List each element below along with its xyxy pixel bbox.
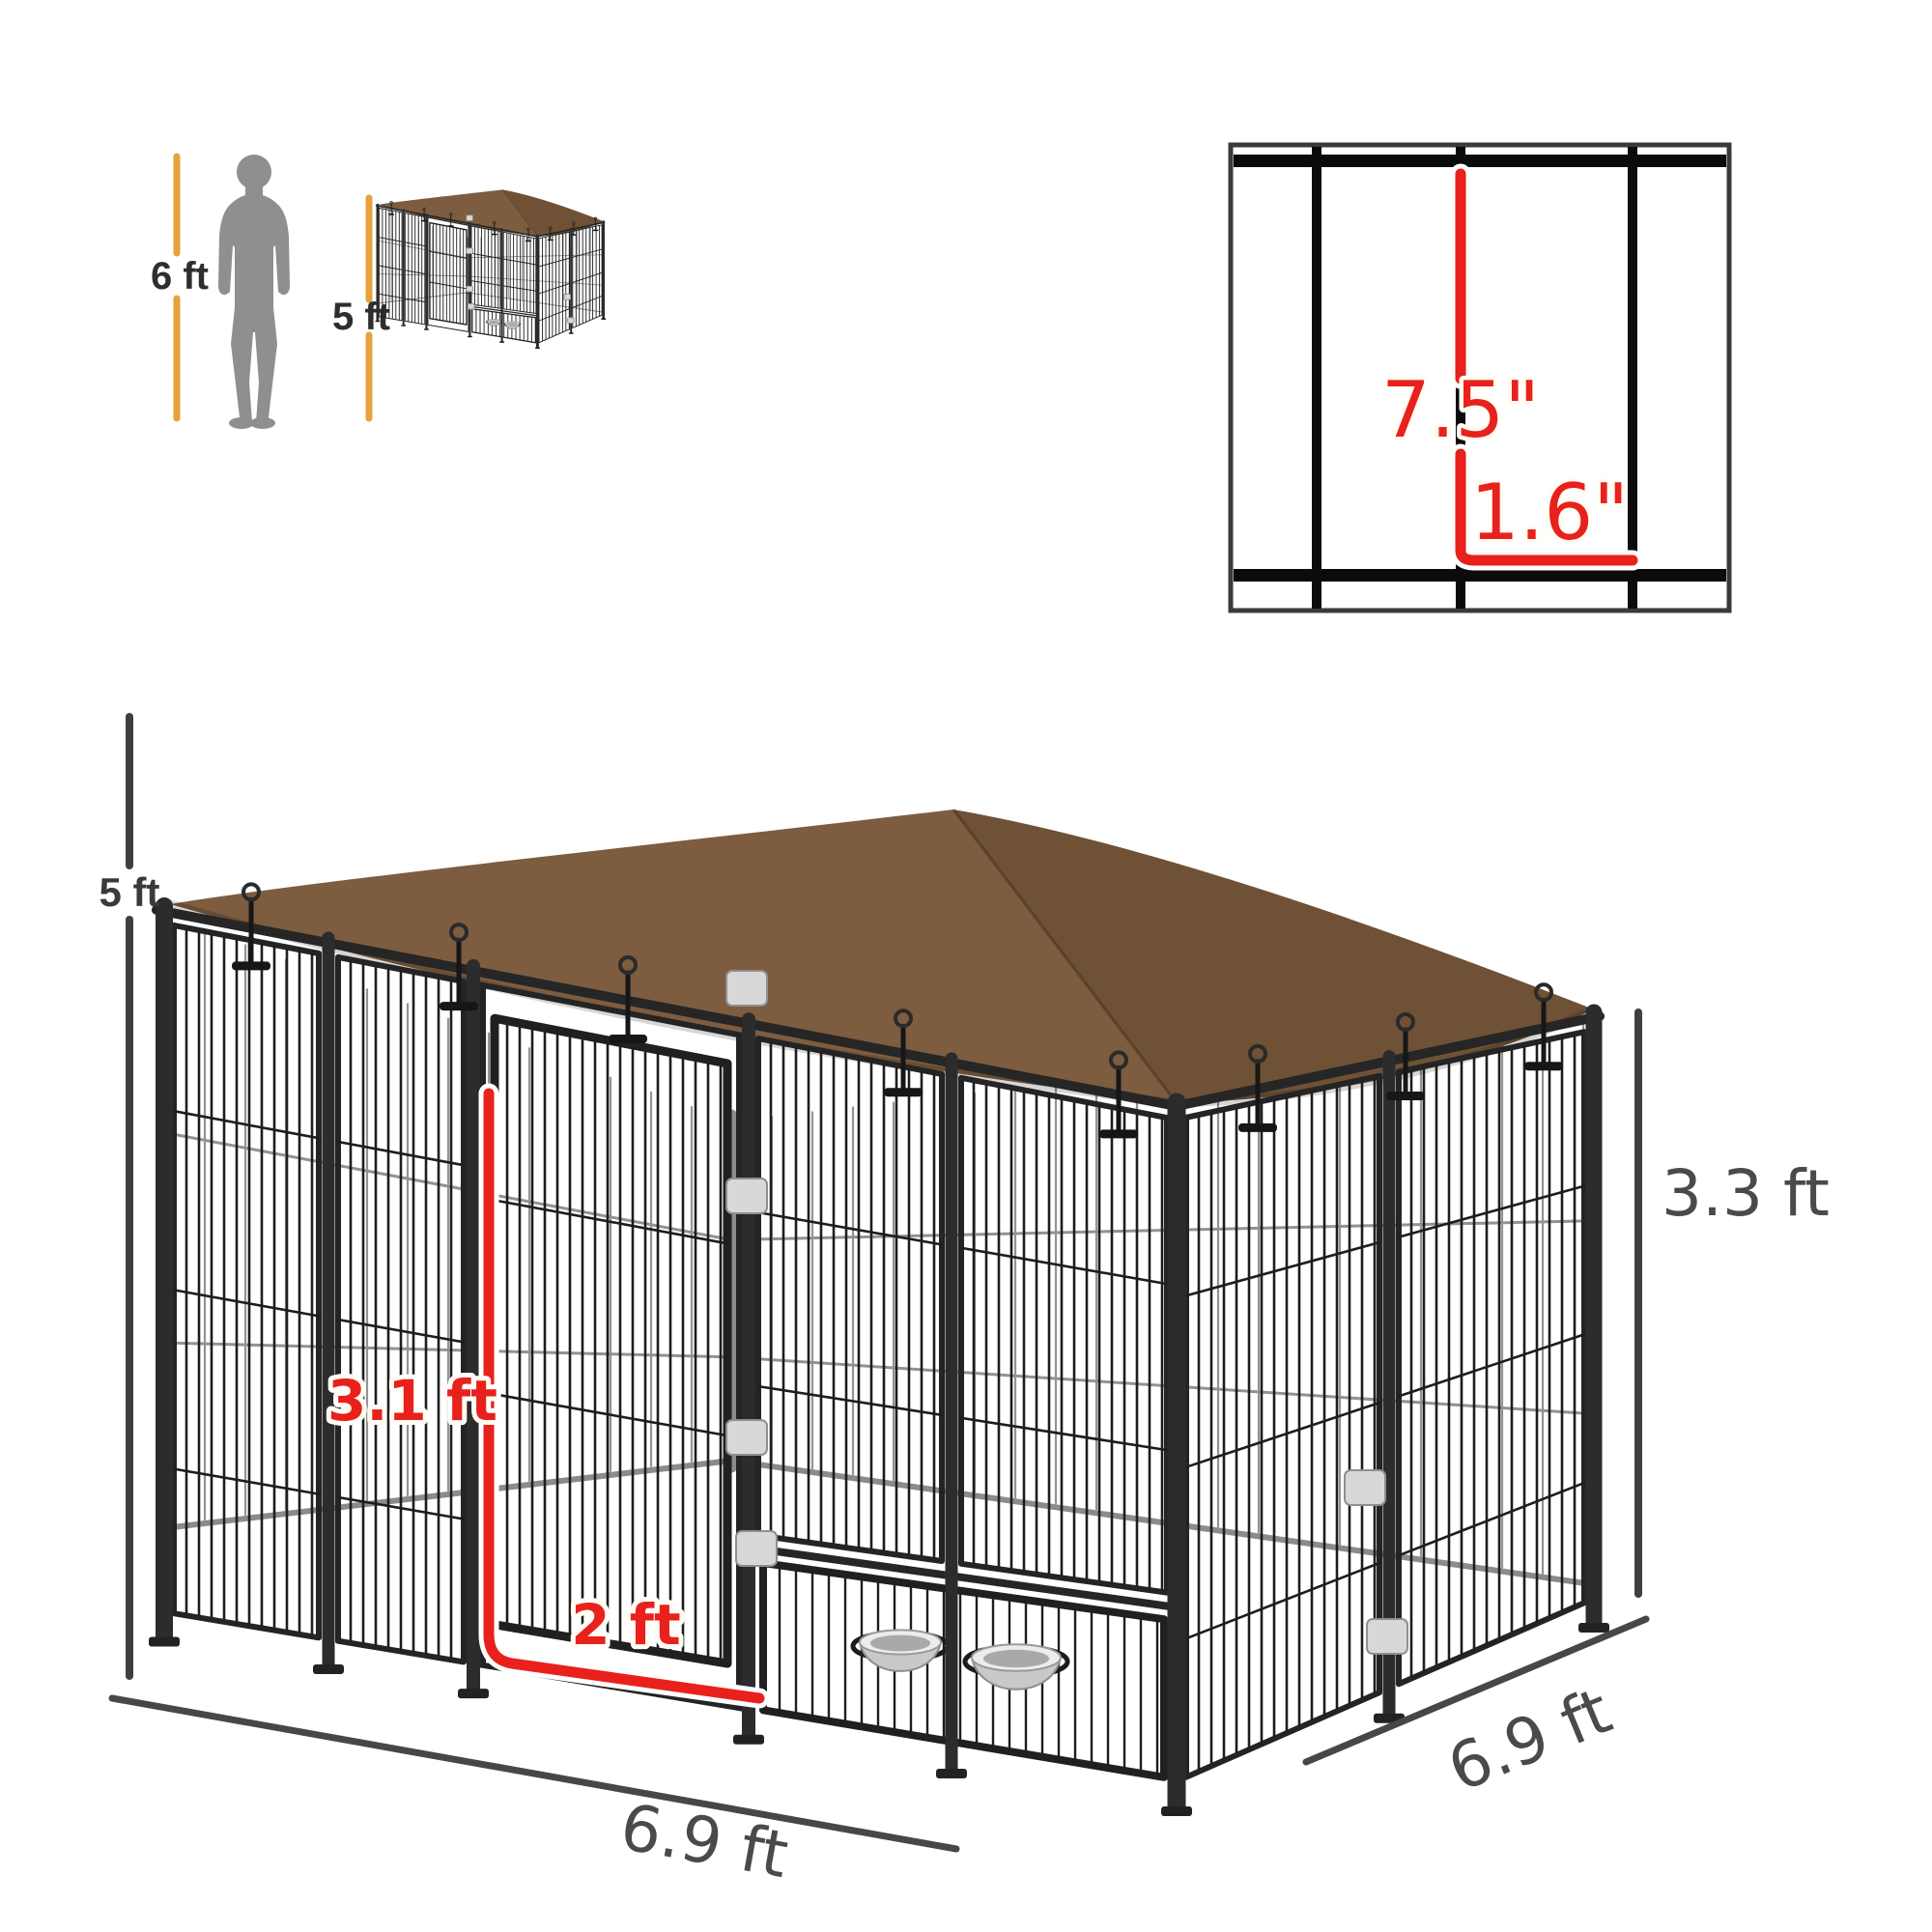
height-label: 5 ft xyxy=(99,869,160,915)
product-dimension-figure: 6 ft 5 ft 7.5" 1.6" 5 ft xyxy=(0,0,1932,1932)
mini-kennel-image xyxy=(375,189,606,349)
bottom-wire-bar xyxy=(1234,569,1726,582)
dog-bowl xyxy=(487,320,501,327)
top-wire-bar xyxy=(1234,155,1726,167)
dog-bowl xyxy=(504,322,521,328)
dog-bowl xyxy=(853,1630,948,1671)
wall-height-label: 3.3 ft xyxy=(1662,1156,1830,1231)
dog-bowl xyxy=(965,1644,1067,1690)
front-width-label: 6.9 ft xyxy=(615,1790,794,1893)
door-height-label: 3.1 ft xyxy=(327,1368,497,1434)
wire-spacing-diagram: 7.5" 1.6" xyxy=(1231,145,1729,611)
human-silhouette xyxy=(218,155,290,429)
vertical-gap-label: 7.5" xyxy=(1381,365,1540,455)
horizontal-gap-label: 1.6" xyxy=(1470,468,1629,557)
human-height-label: 6 ft xyxy=(151,255,209,298)
door-width-label: 2 ft xyxy=(571,1592,681,1658)
vertical-wire-bar xyxy=(1312,147,1321,609)
vertical-wire-bar xyxy=(1628,147,1637,609)
size-comparison: 6 ft 5 ft xyxy=(151,155,606,429)
figure-canvas: 6 ft 5 ft 7.5" 1.6" 5 ft xyxy=(0,0,1932,1932)
kennel-illustration xyxy=(149,810,1609,1816)
kennel-door xyxy=(428,217,469,331)
